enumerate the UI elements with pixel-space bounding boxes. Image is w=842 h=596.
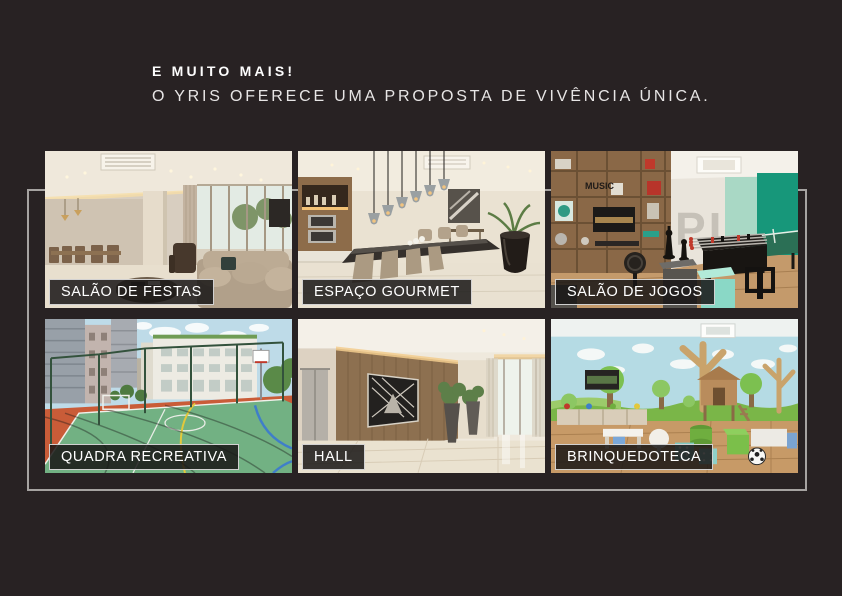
photo-tile-espaco-gourmet: ESPAÇO GOURMET (298, 151, 545, 308)
photo-caption-brinquedoteca: BRINQUEDOTECA (555, 444, 713, 470)
photo-caption-espaco-gourmet: ESPAÇO GOURMET (302, 279, 472, 305)
photo-tile-quadra-recreativa: QUADRA RECREATIVA (45, 319, 292, 473)
photo-caption-quadra-recreativa: QUADRA RECREATIVA (49, 444, 239, 470)
photo-tile-hall: HALL (298, 319, 545, 473)
page-subtitle: O YRIS OFERECE UMA PROPOSTA DE VIVÊNCIA … (152, 88, 711, 106)
shelf-graphic-text: MUSIC (585, 181, 615, 191)
photo-caption-salao-de-festas: SALÃO DE FESTAS (49, 279, 214, 305)
page: E MUITO MAIS! O YRIS OFERECE UMA PROPOST… (0, 0, 842, 596)
photo-caption-salao-de-jogos: SALÃO DE JOGOS (555, 279, 715, 305)
photo-caption-hall: HALL (302, 444, 365, 470)
soccer-ball (749, 448, 766, 465)
photo-tile-salao-de-jogos: PING (551, 151, 798, 308)
page-title: E MUITO MAIS! (152, 63, 295, 79)
photo-tile-salao-de-festas: SALÃO DE FESTAS (45, 151, 292, 308)
photo-tile-brinquedoteca: BRINQUEDOTECA (551, 319, 798, 473)
